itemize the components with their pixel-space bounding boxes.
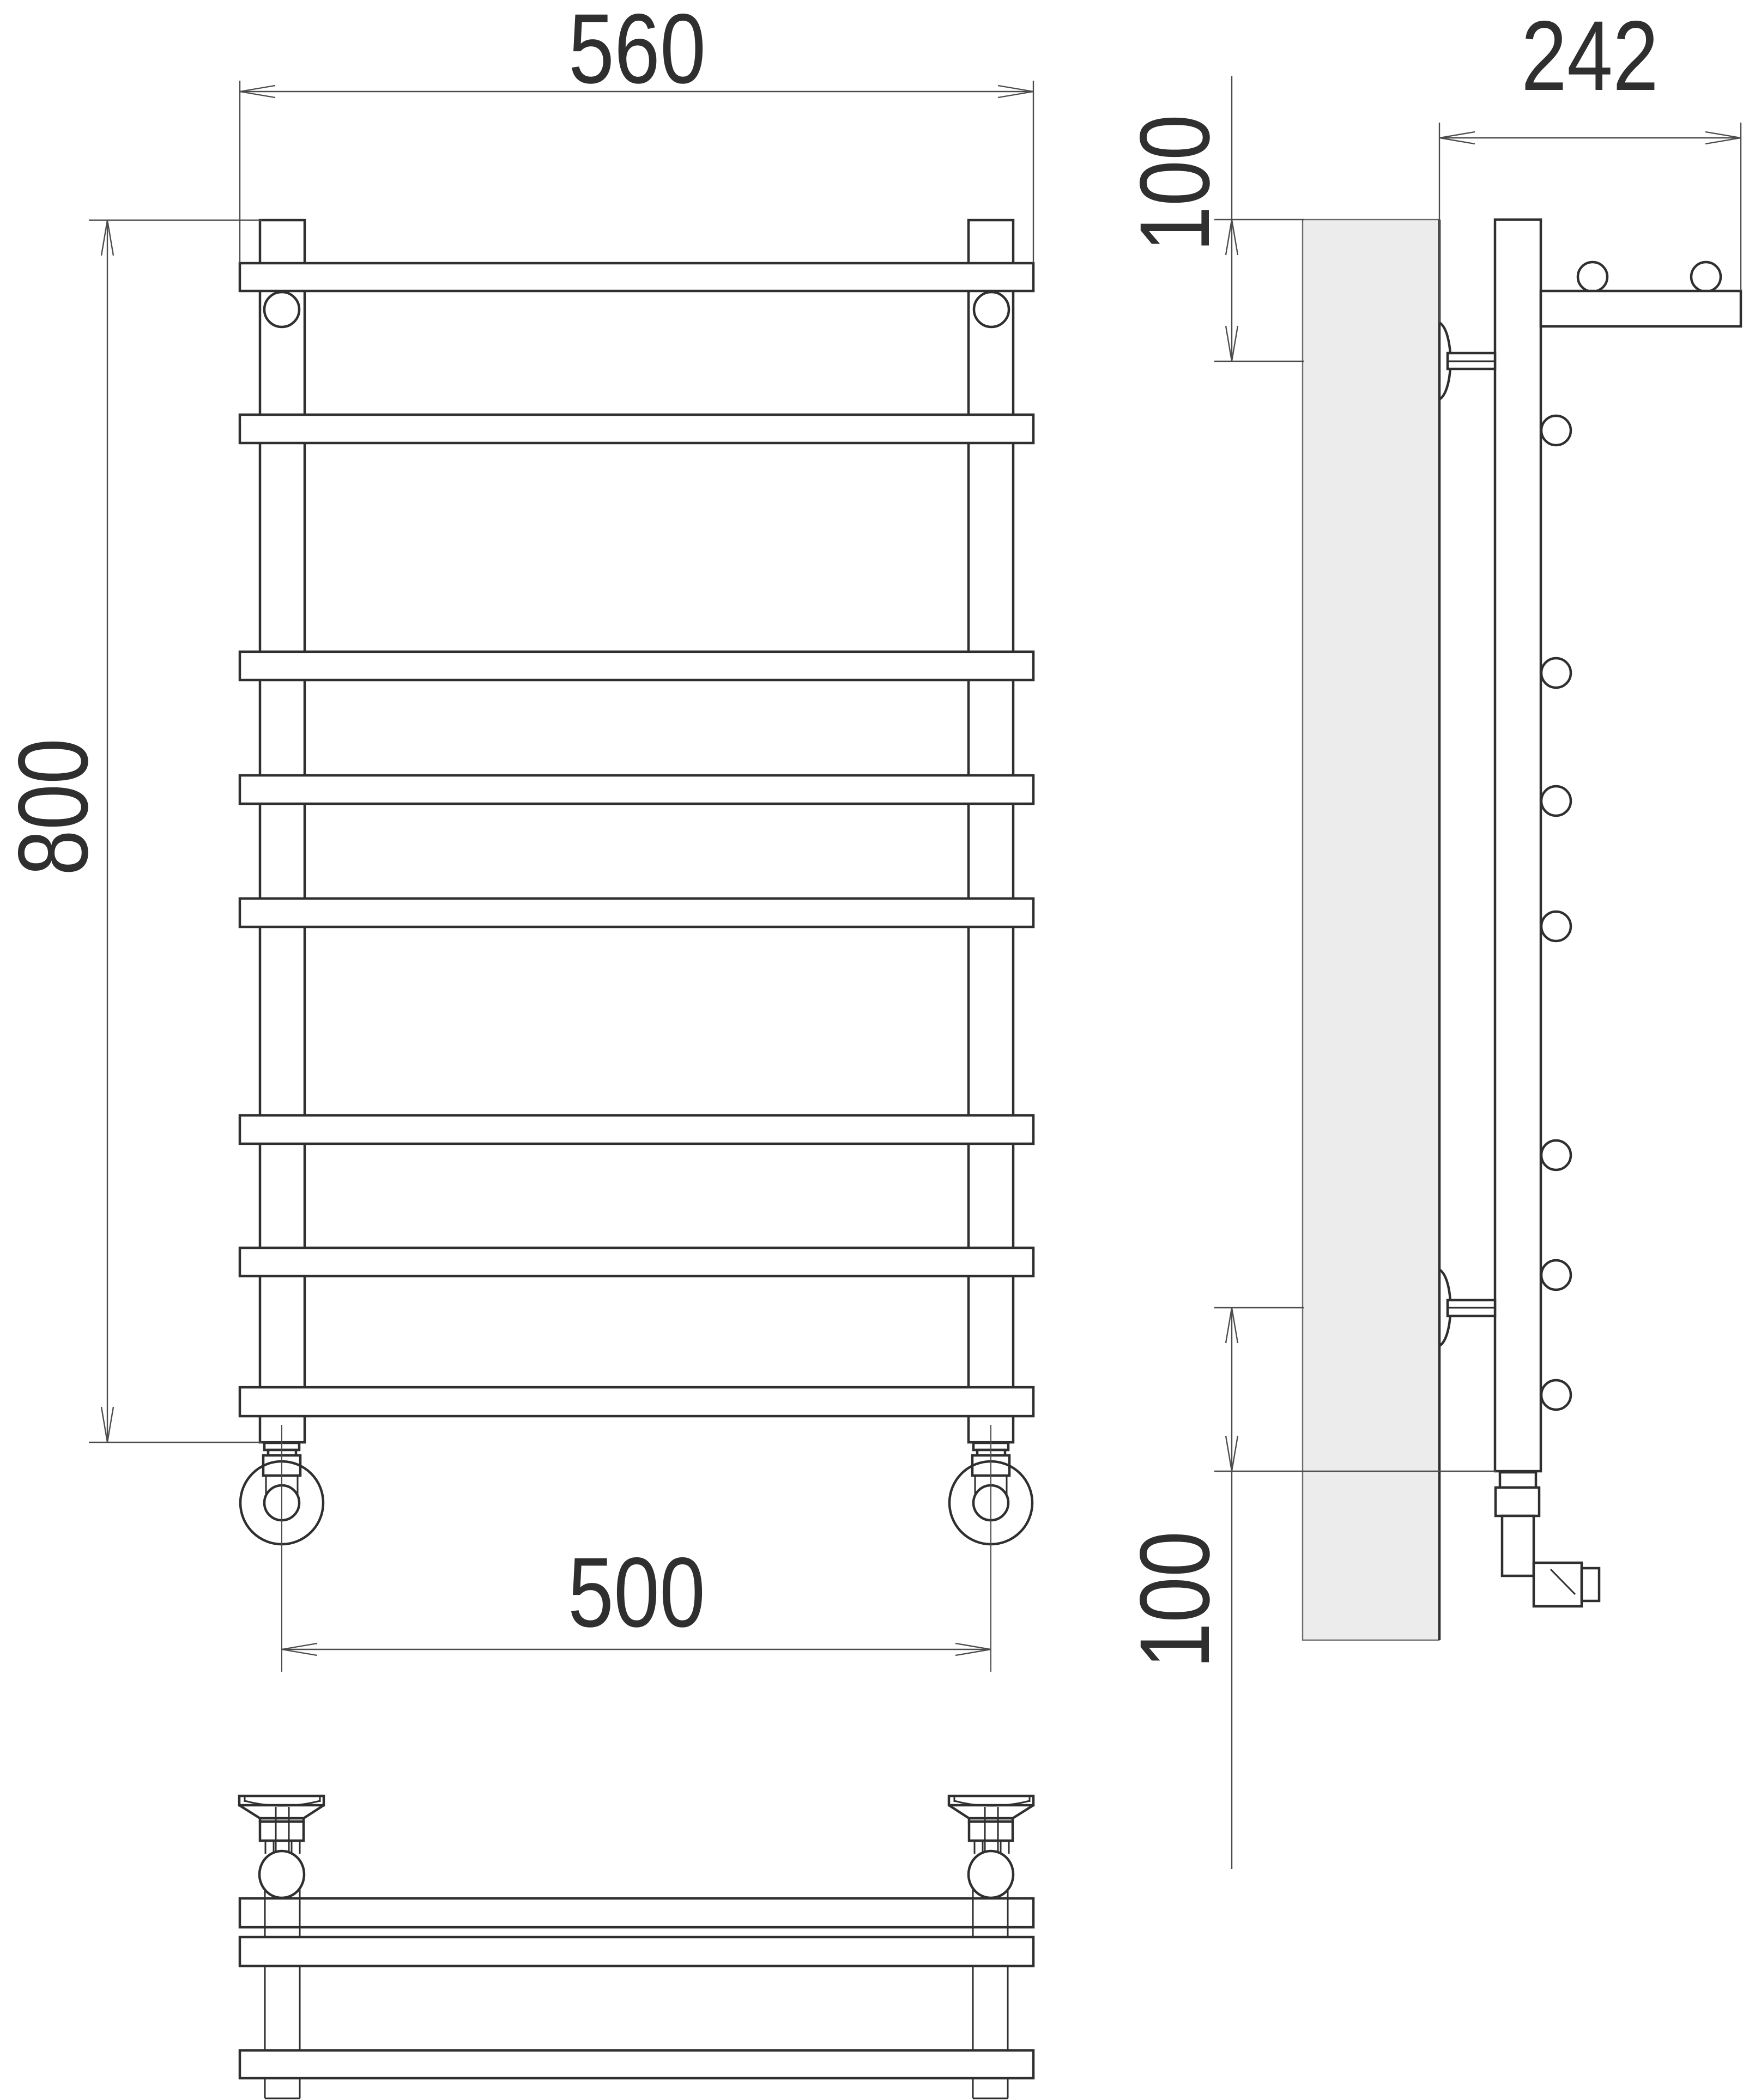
rung-7 (240, 1248, 1033, 1276)
collar-below (969, 1851, 1013, 1898)
rung-end-4 (1541, 786, 1571, 816)
shelf-tube-rear (240, 1937, 1033, 1966)
rung-end-6 (1541, 1140, 1571, 1170)
dim-label-500: 500 (568, 1537, 705, 1648)
bracket-block (260, 1822, 304, 1841)
dim-500-connection-spacing: 500 (282, 1537, 991, 1655)
bracket-taper (239, 1805, 324, 1818)
valve-body (1502, 1516, 1534, 1576)
collar-ring-right (974, 292, 1009, 327)
bracket-below-left (239, 1796, 324, 1898)
valve-tee (1534, 1563, 1582, 1606)
angle-valve (1496, 1472, 1599, 1606)
rung-3 (240, 652, 1033, 680)
collar-below (259, 1851, 304, 1898)
bracket-block (969, 1822, 1013, 1841)
bracket-taper (949, 1805, 1033, 1818)
valve-nut-block (1496, 1488, 1539, 1516)
dim-label-800: 800 (0, 738, 108, 876)
rung-2 (240, 415, 1033, 443)
valve-right (949, 1425, 1032, 1672)
dim-100-top: 100 (1119, 76, 1304, 361)
rung-end-7 (1541, 1260, 1571, 1290)
wall-section (1303, 220, 1439, 1640)
wall-bracket-top (1439, 323, 1495, 399)
rung-end-5 (1541, 912, 1571, 941)
drawing-canvas: 560 800 500 (0, 0, 1743, 2100)
dim-560-top-width: 560 (240, 0, 1033, 263)
vertical-tube (1495, 220, 1541, 1471)
dim-label-100-top: 100 (1119, 114, 1230, 252)
rung-end-3 (1541, 658, 1571, 688)
bracket-rim (239, 1796, 324, 1805)
bottom-view (239, 1796, 1033, 2098)
rung-4 (240, 775, 1033, 804)
shelf-tube-end-rear (1578, 262, 1607, 292)
rung-end-8 (1541, 1380, 1571, 1410)
valve-left (240, 1425, 323, 1672)
rung-1-shelf-bar (240, 263, 1033, 291)
rungs-projection (240, 1898, 1033, 1927)
shelf-tube-front (240, 2050, 1033, 2078)
valve-outlet-nut (1582, 1568, 1599, 1601)
shelf-arm (1541, 291, 1741, 326)
wall-bracket-bottom (1439, 1270, 1495, 1346)
front-view: 560 800 500 (0, 0, 1033, 1672)
collar-ring-left (264, 292, 299, 327)
dim-800-height: 800 (0, 220, 262, 1442)
valve-flange (1500, 1472, 1536, 1488)
bracket-rim (949, 1796, 1033, 1805)
rung-5 (240, 899, 1033, 927)
dim-label-100-bottom: 100 (1119, 1531, 1230, 1668)
dim-label-242: 242 (1521, 0, 1659, 111)
side-view: 242 100 100 (1119, 0, 1741, 1869)
bracket-below-right (949, 1796, 1033, 1898)
drawing-sheet: 560 800 500 (0, 0, 1743, 2100)
dim-label-560: 560 (568, 0, 706, 104)
rung-end-2 (1541, 416, 1571, 445)
rung-ends (1541, 416, 1571, 1410)
rung-6 (240, 1115, 1033, 1144)
shelf-tube-end-front (1691, 262, 1721, 292)
rung-8 (240, 1387, 1033, 1416)
